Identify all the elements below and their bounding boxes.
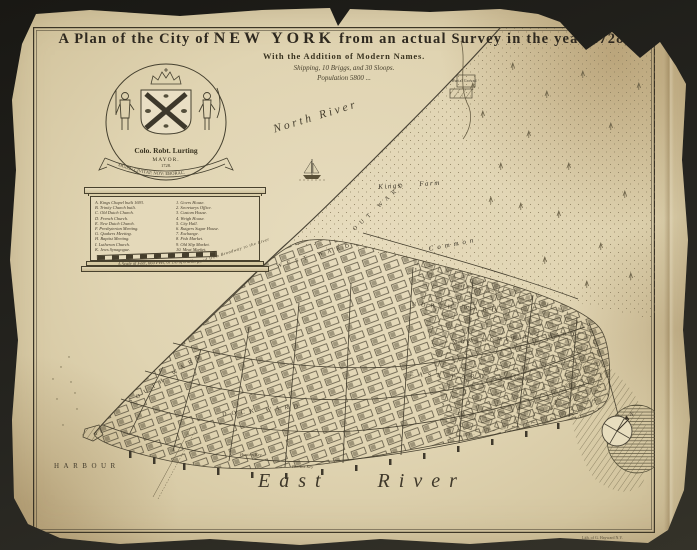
native-supporter xyxy=(199,88,220,130)
mayor-name: Colo. Robt. Lurting xyxy=(134,146,198,155)
compass-north-label: N xyxy=(630,413,634,418)
paper-sheet: N xyxy=(0,0,697,550)
photographed-map-sheet: N xyxy=(0,0,697,550)
pedestal-cornice xyxy=(84,187,266,194)
title-suffix: from an actual Survey in the year 1728, xyxy=(339,31,629,47)
label-hunters-key: Hunters Key xyxy=(240,452,262,457)
motto-text: SIGILL: CIVITAT: NOV: EBORAC. xyxy=(117,162,185,176)
shield-of-arms xyxy=(141,90,191,134)
label-burial-ground: Burial Ground xyxy=(452,79,477,83)
title-prefix: A Plan of the City of xyxy=(59,31,210,47)
label-beekmans-swamp: Beekmans Swamp xyxy=(493,377,528,382)
crown-icon xyxy=(151,68,181,84)
map-title: A Plan of the City of NEW YORK from an a… xyxy=(33,30,655,48)
label-burnets-key: Burnets Key xyxy=(292,464,313,469)
cartouche: Colo. Robt. Lurting MAYOR. 1728. SIGILL:… xyxy=(95,60,237,188)
label-east-river: East River xyxy=(258,470,466,493)
reference-entry: K. Jews Synagogue. xyxy=(95,247,176,252)
paper-crease xyxy=(664,30,674,530)
pedestal-plinth xyxy=(81,266,269,272)
reference-column-left: A. Kings Chapel built 1693.B. Trinity Ch… xyxy=(95,200,176,257)
title-city: NEW YORK xyxy=(214,30,335,47)
mayor-year: 1728. xyxy=(161,163,171,168)
label-harbour: HARBOUR xyxy=(54,462,120,470)
colonist-supporter xyxy=(116,90,134,130)
harbour-shoals xyxy=(52,356,83,435)
imprint: Lith. of G. Hayward N.Y. xyxy=(582,535,623,540)
ship-icon xyxy=(299,159,325,180)
